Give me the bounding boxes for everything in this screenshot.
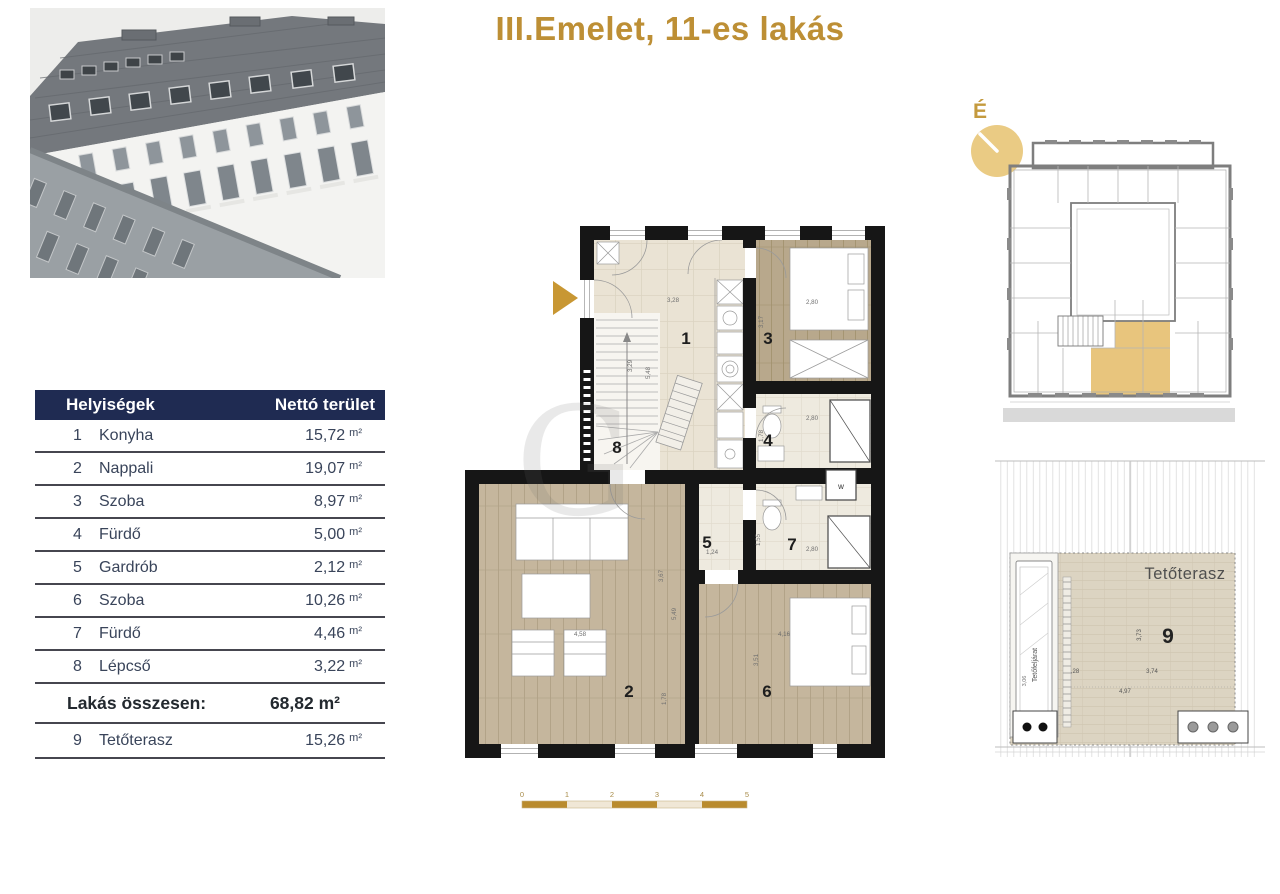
- page-title: III.Emelet, 11-es lakás: [440, 10, 900, 48]
- room-number: 5: [73, 559, 94, 577]
- building-photo: [30, 8, 385, 278]
- room-number: 9: [73, 732, 94, 750]
- dim-label: 4,58: [574, 631, 587, 638]
- room-area-unit: m²: [349, 658, 362, 670]
- table-row: 7 Fürdő 4,46 m²: [35, 618, 385, 651]
- table-row: 1 Konyha 15,72 m²: [35, 420, 385, 453]
- dim-label: 1,24: [706, 549, 719, 556]
- scale-tick: 3: [655, 790, 659, 799]
- dim-label: 3,67: [658, 569, 665, 582]
- boiler-label: w: [837, 482, 844, 491]
- scale-tick: 5: [745, 790, 749, 799]
- scale-tick: 4: [700, 790, 704, 799]
- room-6-number: 6: [762, 682, 771, 701]
- dim-label: 3,28: [667, 297, 680, 304]
- dim-label: 5,48: [645, 366, 652, 379]
- table-row: 5 Gardrób 2,12 m²: [35, 552, 385, 585]
- armchair: [512, 630, 554, 676]
- room-7-number: 7: [787, 535, 796, 554]
- floor-plan: w 1 2 3 4 5 6 7 8 3,28 3,29 5,48 2,80 3,…: [460, 218, 895, 770]
- scale-tick: 1: [565, 790, 569, 799]
- key-plan: [1003, 138, 1235, 428]
- room-area: 5,00: [314, 526, 345, 544]
- total-label: Lakás összesen:: [67, 693, 270, 714]
- room-area-unit: m²: [349, 493, 362, 505]
- scale-tick: 0: [520, 790, 524, 799]
- stair-house-label: Tetőfeljárat: [1032, 648, 1039, 682]
- room-name: Fürdő: [99, 625, 314, 643]
- room-number: 8: [73, 658, 94, 676]
- dim-label: 5,49: [671, 607, 678, 620]
- boiler-box: w: [826, 470, 856, 500]
- room-8-number: 8: [612, 438, 621, 457]
- room-number: 7: [73, 625, 94, 643]
- scale-bar: 0 1 2 3 4 5: [508, 788, 758, 814]
- room-number: 1: [73, 427, 94, 445]
- dim-label: 1,55: [755, 533, 762, 546]
- street-strip: [1003, 408, 1235, 422]
- room-area: 10,26: [305, 592, 345, 610]
- stair-house-dim: 3,06: [1022, 676, 1028, 687]
- key-plan-stair: [1058, 316, 1103, 346]
- dim-label: 1,78: [758, 429, 765, 442]
- room-2-number: 2: [624, 682, 633, 701]
- room-name: Konyha: [99, 427, 305, 445]
- scale-tick-labels: 0 1 2 3 4 5: [520, 790, 749, 799]
- room-area-unit: m²: [349, 732, 362, 744]
- table-total-row: Lakás összesen: 68,82 m²: [35, 684, 385, 724]
- room-number: 6: [73, 592, 94, 610]
- terrace-dim: ,28: [1071, 669, 1080, 675]
- room-area: 19,07: [305, 460, 345, 478]
- dim-label: 4,16: [778, 631, 791, 638]
- room-area-unit: m²: [349, 559, 362, 571]
- sink: [796, 486, 822, 500]
- dim-label: 2,80: [806, 546, 819, 553]
- dim-label: 3,29: [627, 359, 634, 372]
- room-area: 4,46: [314, 625, 345, 643]
- room-1-number: 1: [681, 329, 690, 348]
- sofa: [516, 504, 628, 560]
- table-row: 4 Fürdő 5,00 m²: [35, 519, 385, 552]
- room-area: 15,72: [305, 427, 345, 445]
- dim-label: 2,80: [806, 415, 819, 422]
- room-name: Nappali: [99, 460, 305, 478]
- room-3-number: 3: [763, 329, 772, 348]
- terrace-ladder-strip: [1063, 577, 1071, 727]
- table-header-area: Nettó terület: [275, 395, 375, 415]
- room-name: Tetőterasz: [99, 732, 305, 750]
- table-header-rooms: Helyiségek: [66, 395, 155, 415]
- brochure-page: III.Emelet, 11-es lakás Helyiségek Nettó…: [0, 0, 1280, 894]
- roof-stair-house: Tetőfeljárat 3,06: [1010, 553, 1058, 737]
- room-area: 8,97: [314, 493, 345, 511]
- room-area: 3,22: [314, 658, 345, 676]
- table-row: 6 Szoba 10,26 m²: [35, 585, 385, 618]
- terrace-dim: 3,73: [1137, 629, 1143, 641]
- terrace-plan: Tetőfeljárat 3,06 Tetőterasz 9 ,: [995, 455, 1265, 765]
- total-value: 68,82 m²: [270, 693, 340, 714]
- room-name: Lépcső: [99, 658, 314, 676]
- coffee-table: [522, 574, 590, 618]
- area-table: Helyiségek Nettó terület 1 Konyha 15,72 …: [35, 390, 385, 759]
- dim-label: 3,17: [758, 315, 765, 328]
- dim-label: 3,51: [753, 653, 760, 666]
- terrace-room-number: 9: [1162, 625, 1174, 648]
- entrance-arrow-icon: [553, 281, 578, 315]
- kitchen-sink: [717, 440, 743, 468]
- room-area-unit: m²: [349, 592, 362, 604]
- room-name: Gardrób: [99, 559, 314, 577]
- scale-bar-segments: [522, 801, 747, 808]
- terrace-dim: 4,97: [1119, 689, 1131, 695]
- terrace-dim: 3,74: [1146, 669, 1158, 675]
- room-number: 3: [73, 493, 94, 511]
- room-area-unit: m²: [349, 460, 362, 472]
- scale-tick: 2: [610, 790, 614, 799]
- table-row-terrace: 9 Tetőterasz 15,26 m²: [35, 724, 385, 759]
- table-header: Helyiségek Nettó terület: [35, 390, 385, 420]
- toilet: [763, 506, 781, 530]
- room-5-wardrobe-floor: [699, 484, 743, 570]
- dim-label: 2,80: [806, 299, 819, 306]
- compass-north-label: É: [973, 100, 987, 124]
- chimney-box-left: [1013, 711, 1057, 743]
- room-area: 2,12: [314, 559, 345, 577]
- room-area-unit: m²: [349, 427, 362, 439]
- room-area-unit: m²: [349, 526, 362, 538]
- dim-label: 1,78: [661, 692, 668, 705]
- table-row: 2 Nappali 19,07 m²: [35, 453, 385, 486]
- terrace-label: Tetőterasz: [1144, 565, 1225, 583]
- room-name: Szoba: [99, 592, 305, 610]
- room-name: Fürdő: [99, 526, 314, 544]
- room-number: 4: [73, 526, 94, 544]
- chimney-box-right: [1178, 711, 1248, 743]
- room-number: 2: [73, 460, 94, 478]
- room-name: Szoba: [99, 493, 314, 511]
- room-area: 15,26: [305, 732, 345, 750]
- table-row: 8 Lépcső 3,22 m²: [35, 651, 385, 684]
- room-area-unit: m²: [349, 625, 362, 637]
- table-row: 3 Szoba 8,97 m²: [35, 486, 385, 519]
